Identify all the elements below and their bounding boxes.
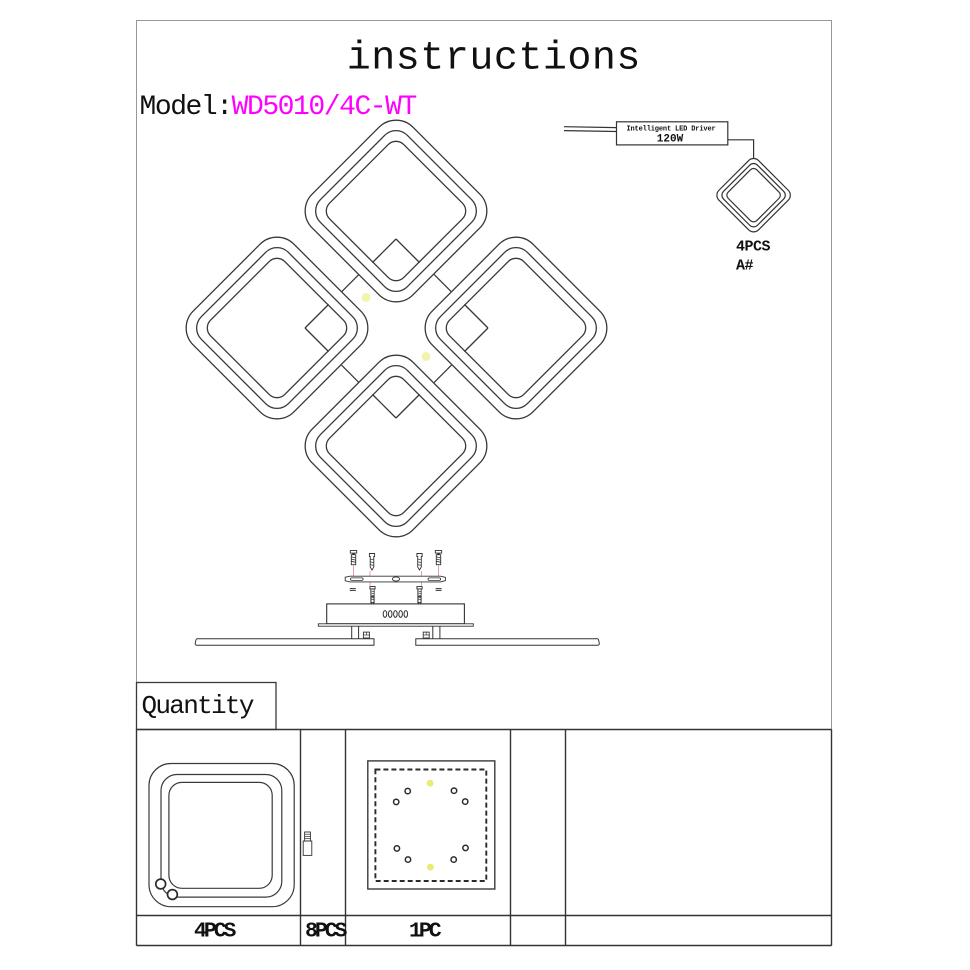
svg-text:4PCS: 4PCS — [194, 920, 237, 944]
svg-text:instructions: instructions — [347, 36, 641, 81]
svg-text:1PC: 1PC — [409, 920, 442, 944]
svg-text:A#: A# — [736, 258, 754, 275]
svg-text:8PCS: 8PCS — [305, 920, 348, 944]
svg-text:Model:WD5010/4C-WT: Model:WD5010/4C-WT — [140, 92, 417, 123]
svg-text:Intelligent LED Driver: Intelligent LED Driver — [626, 126, 715, 134]
svg-text:4PCS: 4PCS — [736, 239, 771, 256]
svg-text:Quantity: Quantity — [142, 691, 254, 721]
svg-text:120W: 120W — [657, 134, 684, 146]
